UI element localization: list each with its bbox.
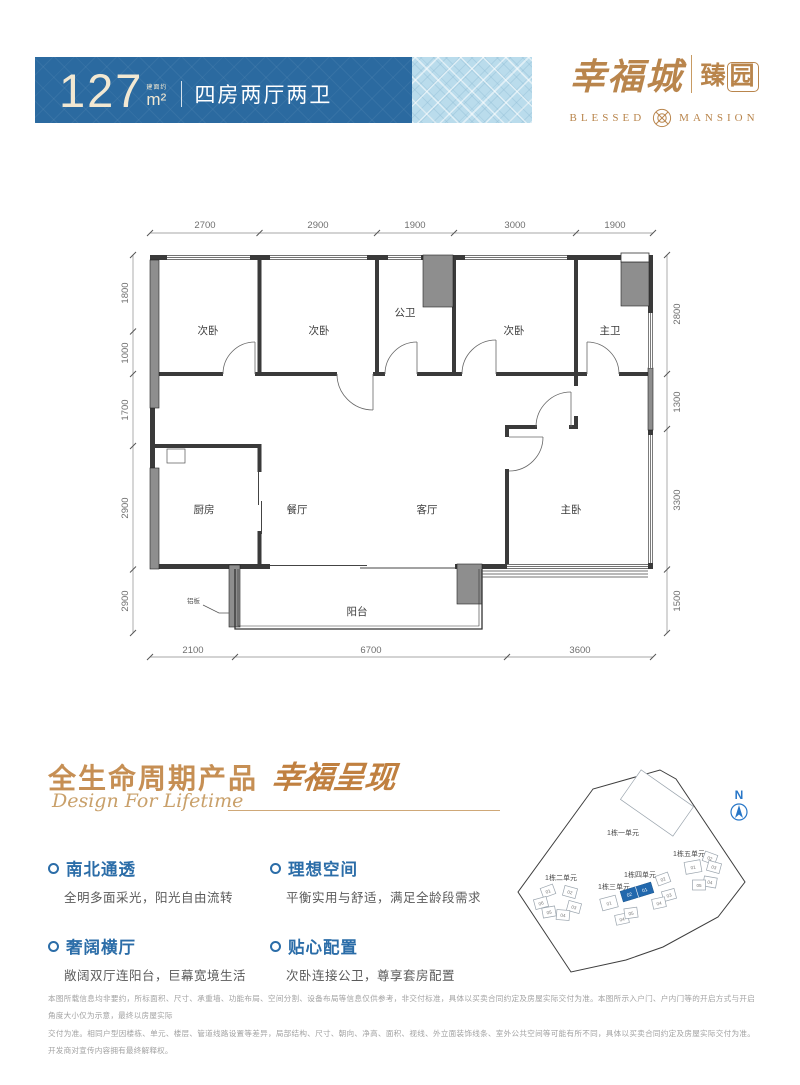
cluster-label-1: 1栋一单元	[607, 828, 639, 837]
dim-top-3: 1900	[404, 220, 425, 231]
dim-left-2: 1000	[120, 342, 131, 363]
dim-right-3: 3300	[672, 489, 683, 510]
section-subtitle-en: Design For Lifetime	[52, 790, 243, 812]
dim-top-1: 2700	[194, 220, 215, 231]
disclaimer-line-1: 本图所载信息均非要约，所标面积、尺寸、承重墙、功能布局、空间分割、设备布局等信息…	[48, 990, 755, 1025]
dim-right-1: 2800	[672, 303, 683, 324]
area-unit-block: 建面约 m²	[146, 82, 167, 108]
banner-divider	[181, 81, 182, 107]
room-label-master-bed: 主卧	[561, 503, 582, 516]
north-arrow-icon: N	[731, 788, 747, 820]
section-title-script: 幸福呈现	[270, 752, 399, 797]
dim-left-4: 2900	[120, 497, 131, 518]
area-number: 127	[59, 67, 143, 114]
logo-en-left: BLESSED	[569, 112, 645, 124]
layout-label: 四房两厅两卫	[194, 79, 332, 109]
room-label-bedroom3: 次卧	[504, 324, 525, 337]
building-unit3: 1栋三单元 01 04 05 02 01	[598, 882, 654, 925]
banner-pattern-block	[412, 57, 532, 123]
feature-item-1: 南北通透 全明多面采光，阳光自由流转	[48, 856, 270, 906]
building-unit2: 1栋二单元 01 02 03 04 05 06	[533, 873, 581, 921]
dim-left-5: 2900	[120, 590, 131, 611]
room-label-kitchen: 厨房	[194, 503, 215, 516]
dim-bottom-3: 3600	[569, 645, 590, 656]
svg-text:05: 05	[696, 883, 702, 888]
room-label-master-bath: 主卫	[600, 325, 621, 337]
dim-right-2: 1300	[672, 391, 683, 412]
note-aluminum-panel: 铝板	[187, 596, 201, 605]
dimension-lines: 2700 2900 1900 3000 1900 2100 6700 3600 …	[120, 220, 683, 660]
bullet-icon	[270, 863, 281, 874]
logo-name-sub: 臻园	[700, 56, 758, 93]
feature-title: 贴心配置	[288, 934, 358, 958]
bullet-icon	[48, 941, 59, 952]
cluster-label-2: 1栋二单元	[545, 873, 577, 882]
disclaimer-line-2: 交付为准。相同户型因楼栋、单元、楼层、管道线路设置等差异，局部结构、尺寸、朝向、…	[48, 1025, 755, 1060]
bullet-icon	[270, 941, 281, 952]
room-label-bedroom2: 次卧	[309, 324, 330, 337]
logo-name-main: 幸福城	[569, 48, 683, 100]
feature-title: 南北通透	[66, 856, 136, 880]
banner-area-block: 127 建面约 m² 四房两厅两卫	[35, 57, 412, 123]
feature-item-4: 贴心配置 次卧连接公卫，尊享套房配置	[270, 934, 488, 984]
cluster-label-5: 1栋五单元	[673, 849, 705, 858]
building-unit1: 1栋一单元	[607, 770, 693, 837]
dim-top-4: 3000	[504, 220, 525, 231]
logo-divider	[691, 55, 692, 93]
floorplan: 2700 2900 1900 3000 1900 2100 6700 3600 …	[105, 213, 695, 675]
dim-bottom-2: 6700	[360, 645, 381, 656]
dim-left-3: 1700	[120, 399, 131, 420]
disclaimer-text: 本图所载信息均非要约，所标面积、尺寸、承重墙、功能布局、空间分割、设备布局等信息…	[48, 990, 755, 1060]
note-leader-line	[203, 605, 229, 613]
dim-right-4: 1500	[672, 590, 683, 611]
feature-item-3: 奢阔横厅 敞阔双厅连阳台，巨幕宽境生活	[48, 934, 270, 984]
bullet-icon	[48, 863, 59, 874]
dim-bottom-1: 2100	[182, 645, 203, 656]
doors	[223, 340, 619, 471]
logo-sub-char1: 臻	[700, 63, 726, 90]
windows	[167, 253, 653, 569]
dim-top-5: 1900	[604, 220, 625, 231]
logo-medallion-icon	[652, 108, 672, 128]
feature-title: 理想空间	[288, 856, 358, 880]
site-plan: N 1栋一单元 1栋二单元 01 02 03 04 05 06 1栋三单元 01…	[513, 757, 763, 977]
logo-chinese-row: 幸福城 臻园	[556, 48, 772, 100]
feature-title: 奢阔横厅	[66, 934, 136, 958]
logo-sub-char2: 园	[727, 62, 759, 93]
feature-desc: 敞阔双厅连阳台，巨幕宽境生活	[64, 965, 270, 984]
dim-top-2: 2900	[307, 220, 328, 231]
feature-desc: 次卧连接公卫，尊享套房配置	[286, 965, 488, 984]
room-label-bedroom1: 次卧	[198, 324, 219, 337]
cluster-label-4: 1栋四单元	[624, 870, 656, 879]
feature-desc: 全明多面采光，阳光自由流转	[64, 887, 270, 906]
brochure-page: 127 建面约 m² 四房两厅两卫 幸福城 臻园 BLESSED MANSION	[0, 0, 800, 1085]
balcony-rail	[235, 569, 648, 629]
logo-en-right: MANSION	[679, 112, 758, 124]
feature-list: 南北通透 全明多面采光，阳光自由流转 理想空间 平衡实用与舒适，满足全龄段需求 …	[48, 856, 488, 984]
room-label-living: 客厅	[417, 503, 438, 516]
area-unit-label: m²	[146, 91, 166, 108]
room-label-balcony: 阳台	[347, 605, 368, 618]
room-label-dining: 餐厅	[287, 503, 308, 516]
svg-text:N: N	[735, 788, 744, 802]
logo-english-row: BLESSED MANSION	[556, 108, 772, 128]
brand-logo: 幸福城 臻园 BLESSED MANSION	[556, 48, 772, 128]
dim-left-1: 1800	[120, 282, 131, 303]
feature-item-2: 理想空间 平衡实用与舒适，满足全龄段需求	[270, 856, 488, 906]
room-label-public-bath: 公卫	[395, 307, 416, 319]
building-unit5: 1栋五单元 01 02 03 04 05	[673, 849, 722, 890]
svg-text:04: 04	[560, 913, 566, 918]
header-banner: 127 建面约 m² 四房两厅两卫	[35, 57, 532, 123]
interior-walls	[150, 255, 653, 569]
section-divider-line	[228, 810, 500, 811]
feature-desc: 平衡实用与舒适，满足全龄段需求	[286, 887, 488, 906]
